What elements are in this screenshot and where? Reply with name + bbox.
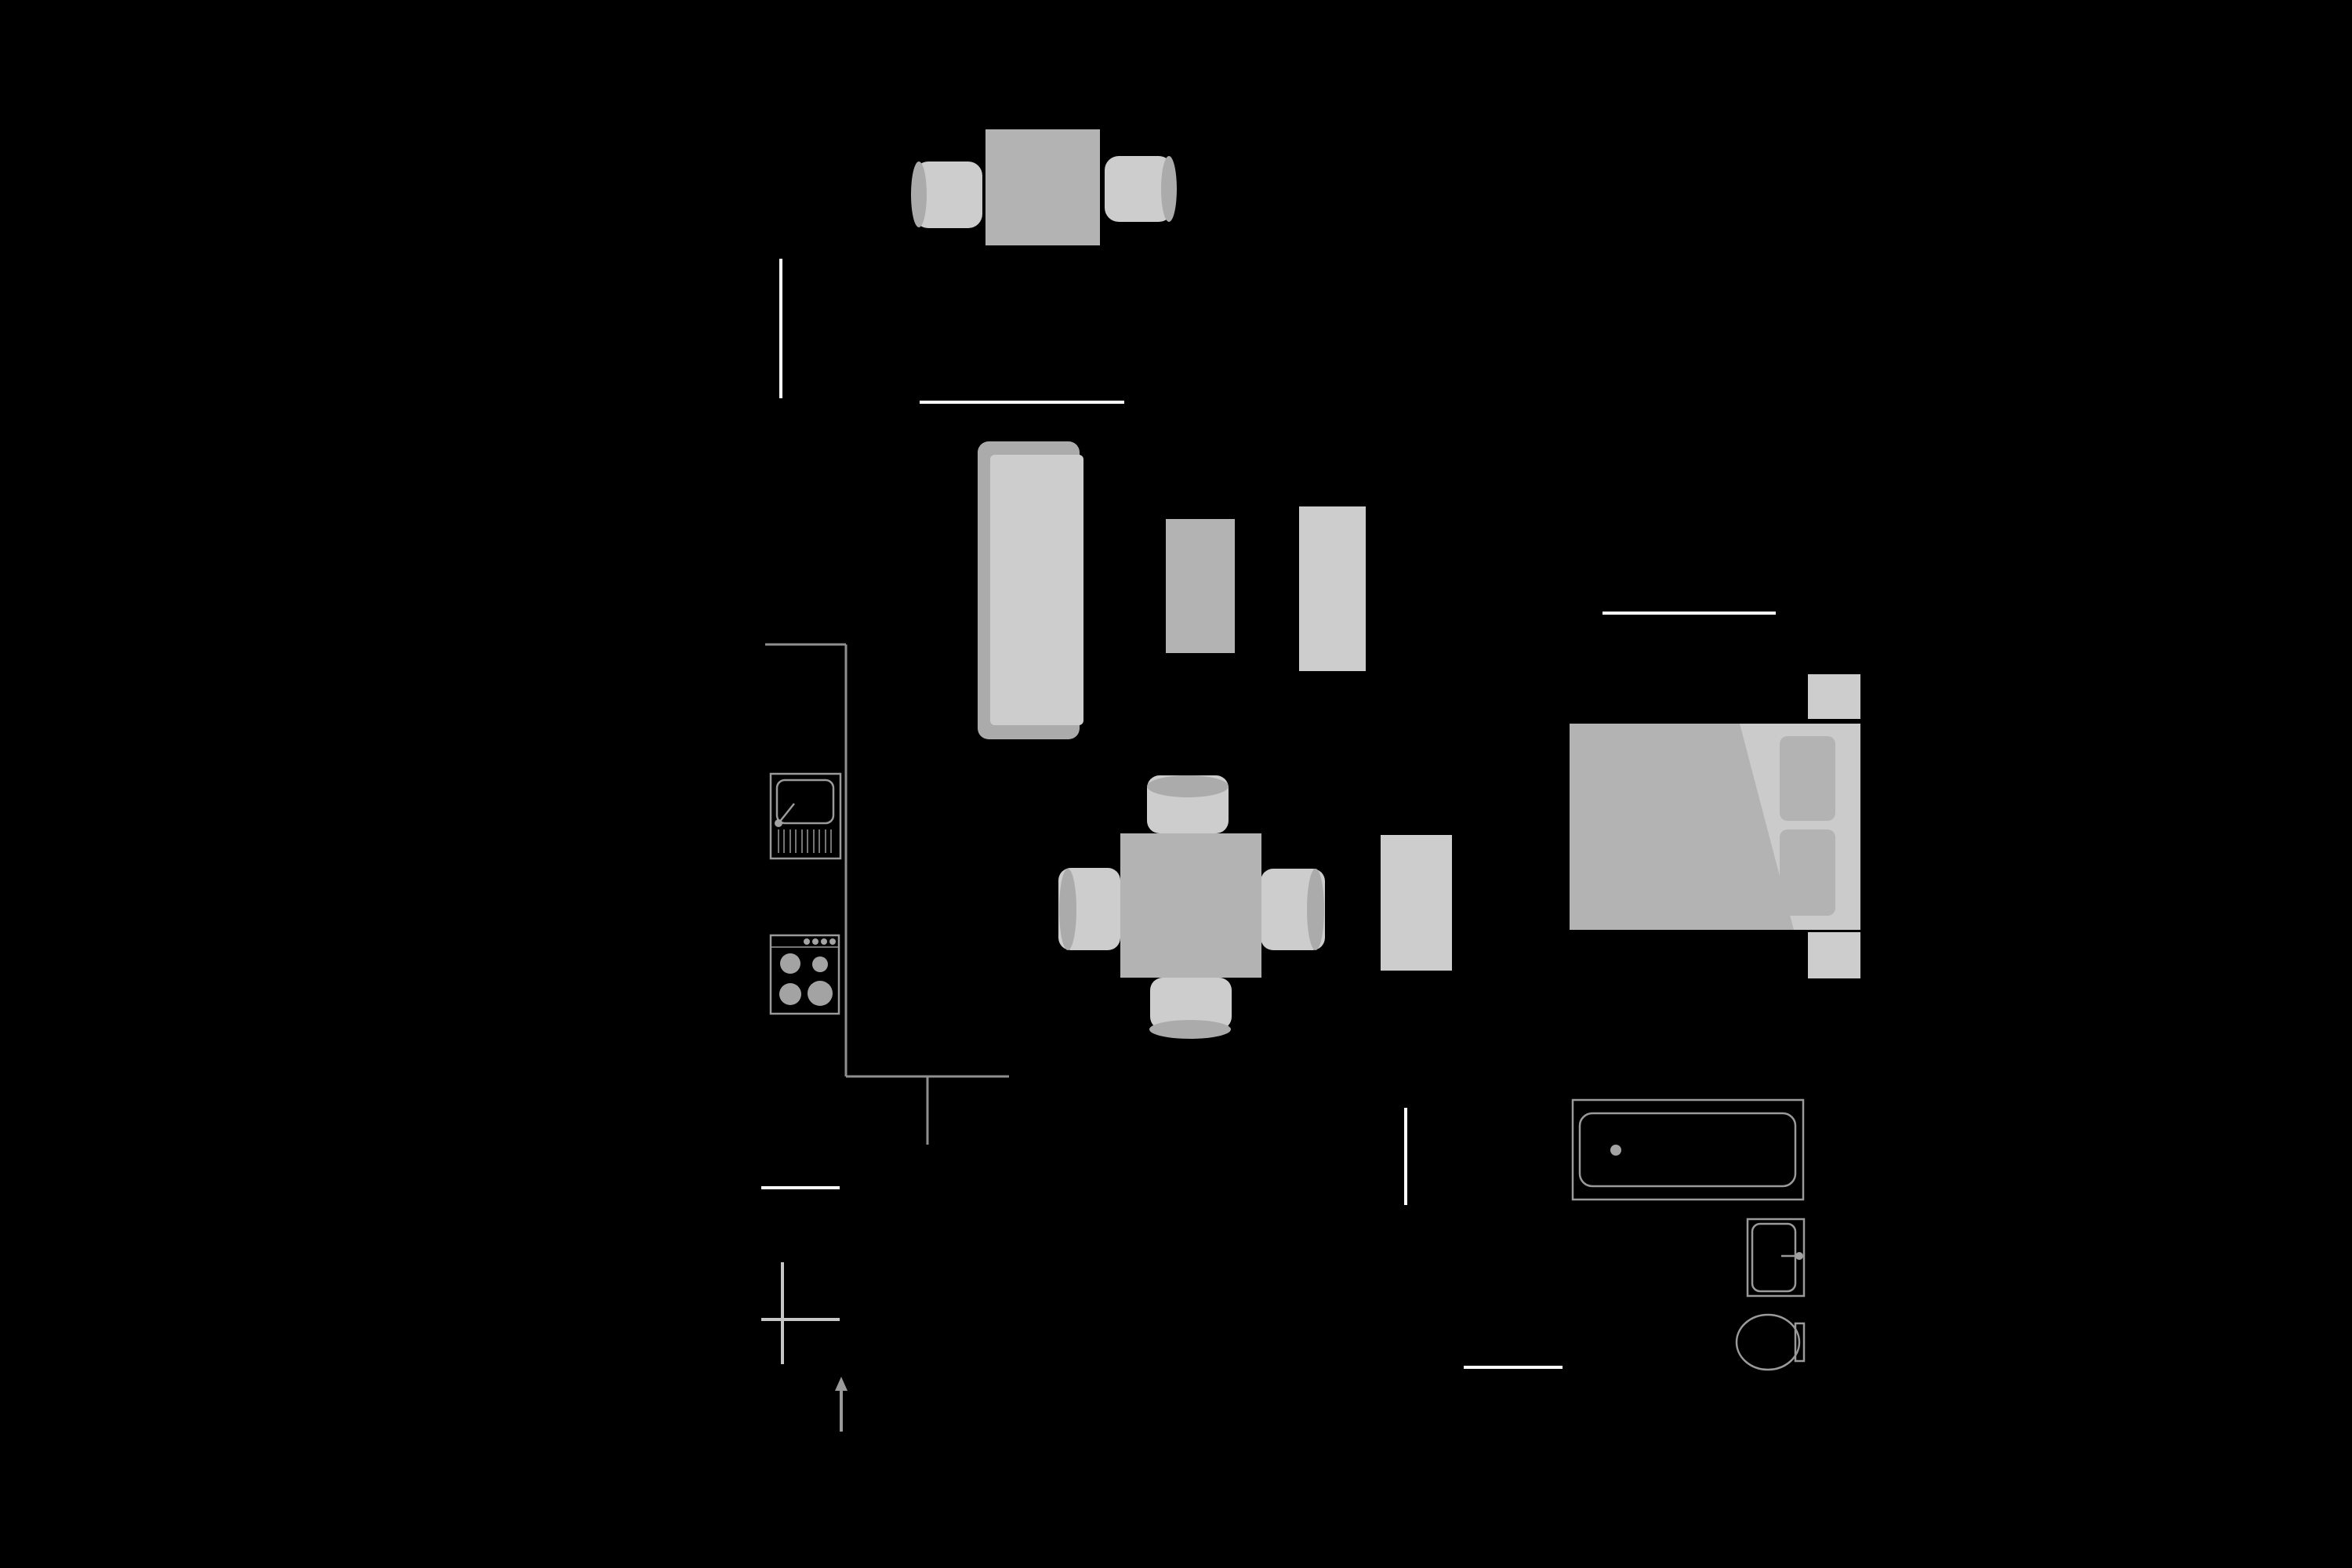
dining-area	[1058, 775, 1452, 1039]
sink-basin	[777, 780, 833, 823]
dining-chair-left	[1058, 868, 1120, 950]
coffee-table	[1166, 519, 1235, 653]
patio-chair-left-back	[911, 162, 927, 227]
burner-bottom-left	[779, 983, 801, 1005]
annotations	[761, 1262, 848, 1432]
pillow-top	[1780, 736, 1835, 821]
bathtub-outline	[1573, 1100, 1803, 1200]
tv-bench	[1299, 506, 1366, 671]
sink-drainer-grooves	[779, 829, 831, 853]
reference-cross	[761, 1262, 840, 1364]
floor-plan	[0, 0, 2352, 1568]
north-arrow	[835, 1377, 848, 1432]
balcony	[911, 129, 1177, 245]
floor-plan-drawing	[0, 0, 2352, 1568]
pillow-bottom	[1780, 829, 1835, 916]
living-room	[978, 441, 1366, 739]
dining-chair-left-back	[1059, 869, 1076, 950]
patio-chair-left	[911, 162, 982, 228]
toilet	[1737, 1315, 1804, 1370]
sideboard	[1381, 835, 1452, 971]
sofa-seat	[990, 455, 1083, 725]
dining-chair-bottom	[1149, 978, 1232, 1039]
bathtub	[1573, 1100, 1803, 1200]
patio-table	[985, 129, 1100, 245]
toilet-bowl	[1737, 1315, 1799, 1370]
north-arrow-head	[835, 1377, 848, 1391]
sink-faucet-base	[775, 819, 782, 827]
sink-unit-outline	[771, 774, 840, 858]
stove-knobs	[804, 938, 836, 945]
burner-bottom-right	[808, 981, 833, 1006]
burner-top-left	[780, 953, 800, 974]
washbasin-inner	[1752, 1224, 1795, 1291]
washbasin-faucet-knob	[1795, 1252, 1803, 1260]
stove-burners	[779, 953, 833, 1006]
dining-chair-top	[1147, 775, 1229, 833]
dining-chair-right	[1261, 869, 1325, 950]
nightstand-top	[1808, 674, 1860, 719]
patio-chair-right-back	[1161, 156, 1177, 222]
stove	[771, 935, 839, 1014]
partition-lines	[765, 644, 1009, 1145]
kitchen-sink	[771, 774, 840, 858]
bathtub-drain	[1610, 1145, 1621, 1156]
burner-top-right	[812, 956, 828, 972]
dining-chair-bottom-back	[1149, 1020, 1231, 1039]
dining-table	[1120, 833, 1261, 978]
washbasin	[1748, 1219, 1804, 1296]
kitchen	[771, 774, 840, 1014]
nightstand-bottom	[1808, 932, 1860, 978]
patio-chair-right	[1105, 156, 1177, 222]
dining-chair-top-back	[1147, 775, 1229, 797]
dining-chair-right-back	[1307, 869, 1324, 950]
bathroom	[1573, 1100, 1804, 1370]
bedroom	[1570, 674, 1860, 978]
